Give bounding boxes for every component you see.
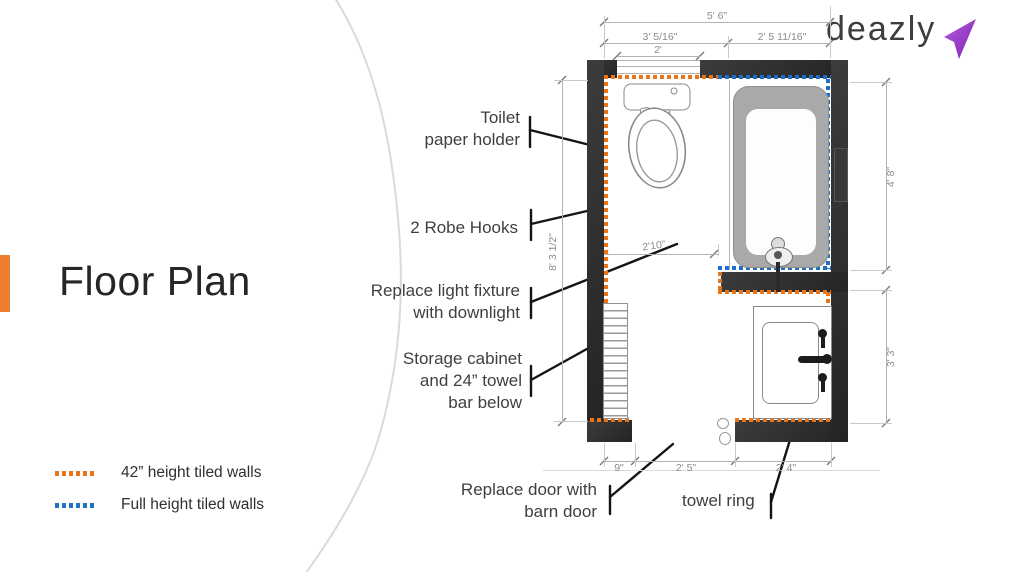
extension-line-floor — [543, 470, 880, 471]
wall-right — [831, 60, 848, 442]
dim-bottom-middle: 2' 5" — [676, 462, 696, 474]
annotation-towel-ring: towel ring — [682, 490, 755, 512]
door-hinge-symbol — [717, 418, 729, 429]
tile-42in-top — [604, 75, 718, 79]
legend-label: Full height tiled walls — [121, 496, 264, 514]
extension-line — [635, 443, 636, 467]
tub-alcove-line — [729, 80, 730, 270]
dim-bottom-right: 2' 4" — [776, 462, 796, 474]
extension-line — [554, 421, 588, 422]
legend-label: 42” height tiled walls — [121, 464, 261, 482]
bathtub-basin — [746, 109, 816, 255]
vanity-sink — [762, 322, 819, 404]
extension-line — [850, 290, 892, 291]
tub-plumbing-stem — [776, 262, 780, 292]
logo-wordmark: deazly — [826, 10, 936, 49]
annotation-storage-cabinet: Storage cabinet and 24” towel bar below — [403, 348, 522, 414]
extension-line — [735, 443, 736, 467]
annotation-robe-hooks: 2 Robe Hooks — [410, 217, 518, 239]
extension-line — [850, 82, 892, 83]
vanity-hinge-top-stem — [821, 336, 825, 348]
vanity-handle-knob — [822, 354, 832, 364]
title-accent-bar — [0, 255, 10, 312]
legend-item-42in-tile: 42” height tiled walls — [55, 464, 261, 482]
dim-line-bottom — [604, 461, 831, 462]
window-line — [617, 60, 700, 61]
page-title: Floor Plan — [59, 258, 251, 305]
logo: deazly — [826, 10, 978, 62]
extension-line — [831, 443, 832, 467]
blue-dotted-swatch — [55, 503, 97, 508]
legend-item-full-tile: Full height tiled walls — [55, 496, 264, 514]
dim-line-left — [562, 80, 563, 422]
window-line — [617, 73, 700, 74]
extension-line — [728, 36, 729, 58]
extension-line — [850, 270, 892, 271]
dim-line-window — [617, 56, 700, 57]
wall-tub-deck — [721, 272, 848, 292]
vanity-hinge-bottom-stem — [821, 380, 825, 392]
dim-line-interior — [604, 254, 718, 255]
logo-arrow-icon — [942, 16, 978, 62]
tub-drain-cap — [774, 251, 782, 259]
tile-full-top — [718, 75, 831, 79]
dim-line-top-total — [604, 22, 830, 23]
orange-dotted-swatch — [55, 471, 97, 476]
door-hinge-symbol — [719, 432, 731, 445]
window-line — [617, 66, 700, 67]
dim-left-height: 8' 3 1/2" — [547, 233, 559, 271]
wall-left — [587, 60, 604, 422]
annotation-barn-door: Replace door with barn door — [461, 479, 597, 523]
dim-right-upper: 4' 8" — [885, 167, 897, 187]
wall-bottom-left-stub — [587, 420, 632, 442]
tile-42in-deck-bottom — [718, 290, 831, 294]
towel-bar-storage-cabinet — [603, 303, 628, 419]
extension-line — [718, 244, 719, 256]
wall-niche — [834, 148, 848, 202]
toilet — [624, 84, 691, 192]
dim-right-lower: 3' 3" — [885, 347, 897, 367]
dim-bottom-left: 9" — [614, 462, 624, 474]
dim-line-top-split — [604, 43, 830, 44]
dim-top-total: 5' 6" — [707, 10, 727, 22]
dim-top-right: 2' 5 11/16" — [758, 31, 807, 43]
dim-interior-width: 2'10" — [642, 238, 667, 253]
dim-window: 2' — [654, 44, 662, 56]
dim-top-left: 3' 5/16" — [643, 31, 678, 43]
extension-line — [554, 80, 588, 81]
tile-42in-deck-side — [718, 272, 722, 292]
extension-line — [830, 6, 831, 58]
annotation-light-fixture: Replace light fixture with downlight — [371, 280, 520, 324]
extension-line — [604, 443, 605, 467]
extension-line — [604, 16, 605, 58]
slide: Floor Plan deazly 42” height tiled walls… — [0, 0, 1024, 572]
extension-line — [850, 423, 892, 424]
annotation-toilet-paper-holder: Toilet paper holder — [425, 107, 520, 151]
